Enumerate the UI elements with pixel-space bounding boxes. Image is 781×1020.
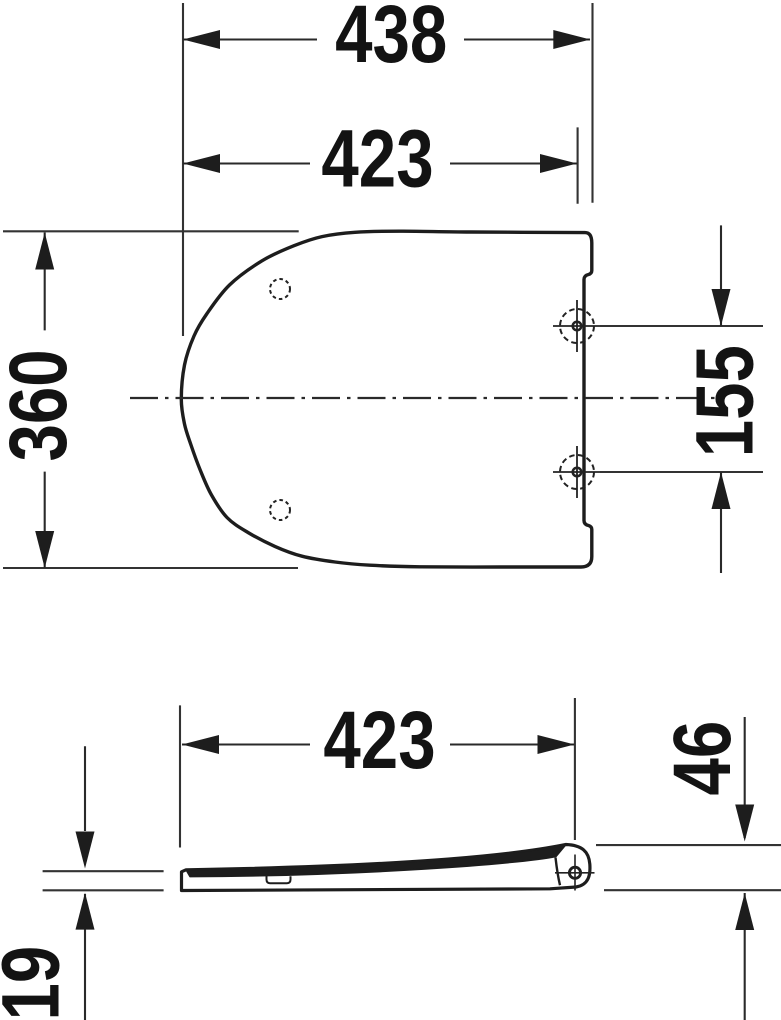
svg-text:423: 423 (323, 694, 435, 786)
svg-text:46: 46 (656, 721, 748, 796)
svg-text:360: 360 (0, 349, 84, 461)
svg-text:423: 423 (321, 112, 433, 204)
svg-text:438: 438 (335, 0, 447, 79)
svg-text:155: 155 (678, 345, 770, 457)
svg-text:19: 19 (0, 946, 76, 1020)
